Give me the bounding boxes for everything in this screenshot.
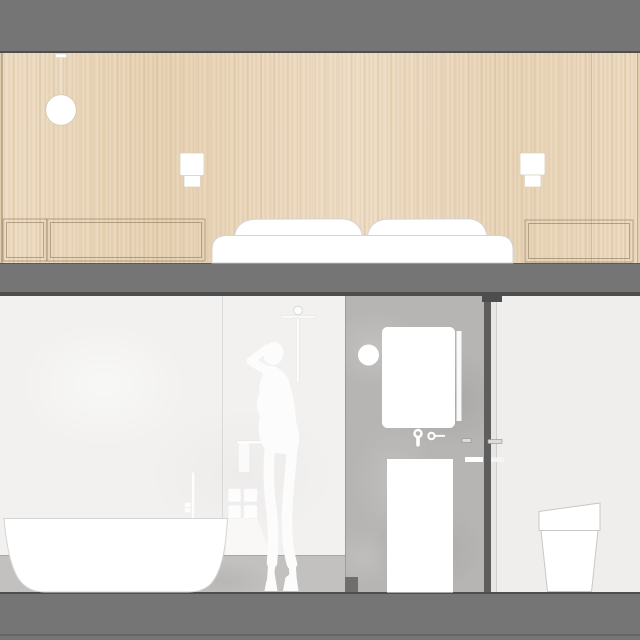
wood-panel-seam [591,53,592,263]
bathroom-lower-wall-band [0,555,345,592]
partition-wall-cut [484,300,491,592]
bathroom-floor-slab [0,592,640,640]
wood-accent-wall [0,53,640,263]
elevation-drawing [0,0,640,640]
bathroom-wall-left [0,296,345,593]
ceiling-slab-band [0,0,640,51]
floor-joint-line [0,634,640,636]
concrete-wall [345,296,484,593]
wood-panel-edge-right [637,53,639,263]
toilet-room-wall [491,296,640,593]
wall-reveal-strip [491,301,497,592]
shower-glass-partition [222,296,224,592]
partition-ceiling-notch [482,296,502,303]
shower-step-plinth [345,577,358,592]
intermediate-floor-slab [0,263,640,292]
wood-panel-edge-left [1,53,3,263]
